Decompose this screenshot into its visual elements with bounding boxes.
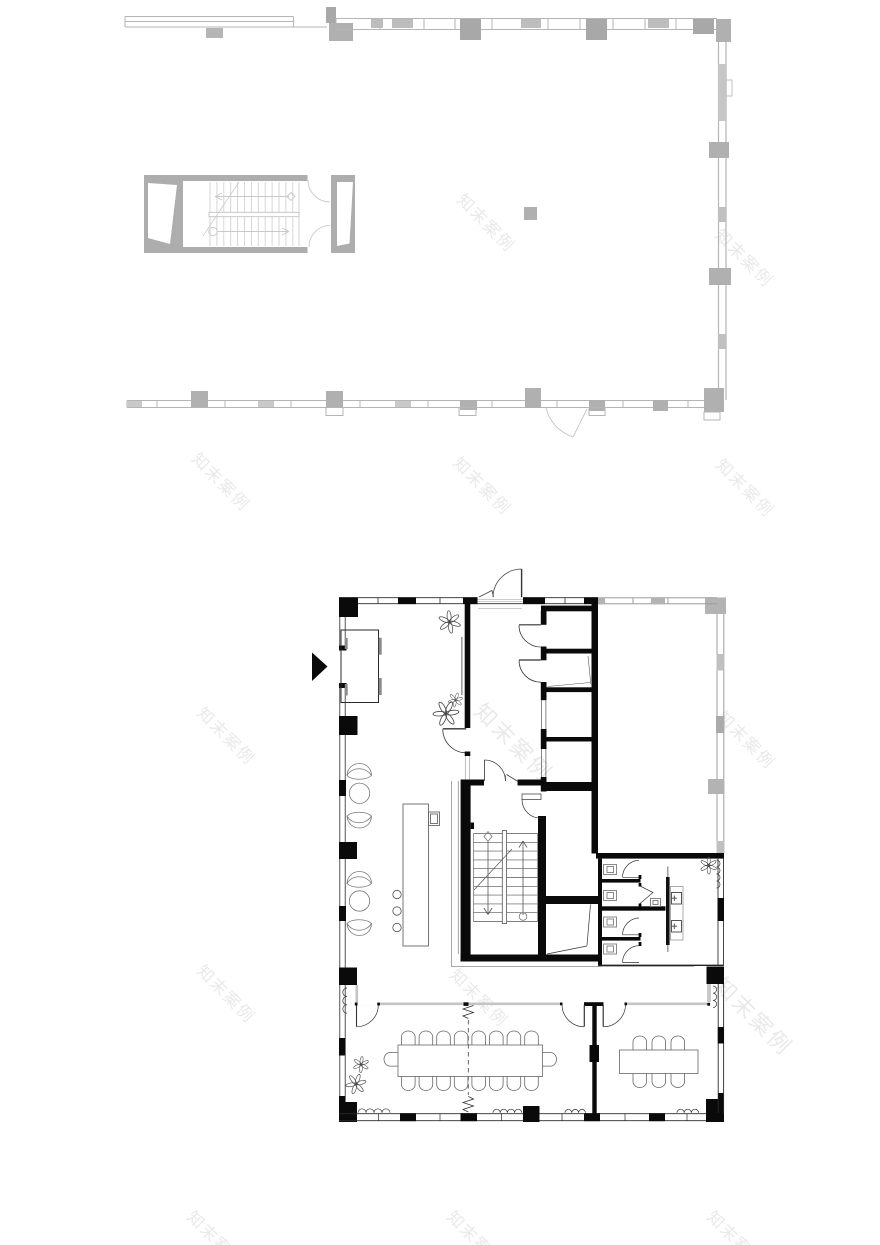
svg-text:知末案例: 知末案例 [446, 965, 512, 1031]
svg-text:知末案例: 知末案例 [443, 1207, 509, 1245]
svg-text:知末案例: 知末案例 [183, 1207, 249, 1245]
svg-text:知末案例: 知末案例 [193, 703, 259, 769]
svg-text:知末案例: 知末案例 [453, 190, 519, 256]
svg-text:知末案例: 知末案例 [449, 453, 515, 519]
svg-text:知末案例: 知末案例 [188, 449, 254, 515]
svg-text:知末案例: 知末案例 [703, 1207, 769, 1245]
svg-text:知末案例: 知末案例 [193, 961, 259, 1027]
svg-text:知末案例: 知末案例 [712, 455, 778, 521]
svg-text:知末案例: 知末案例 [709, 972, 797, 1060]
